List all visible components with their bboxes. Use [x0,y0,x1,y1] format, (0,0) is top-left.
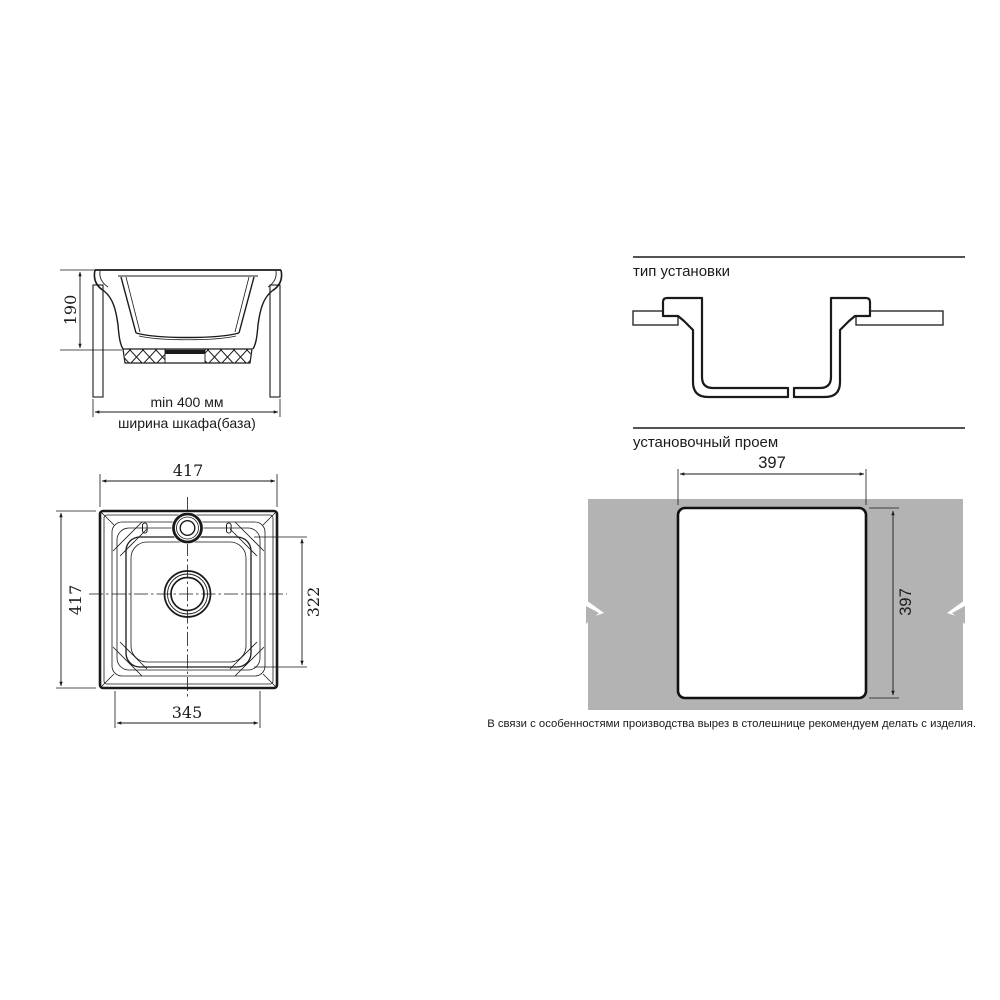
dim-cutout-width: 397 [678,454,866,505]
cross-section-view: 190 min 400 мм ширина шкафа(база) [60,270,282,431]
cutout-opening [678,508,866,698]
installation-type-title: тип установки [633,263,730,280]
dim-cutout-height-value: 397 [897,588,915,616]
dim-bowl-width: 345 [115,691,260,728]
bowl-floor-edge [131,542,246,662]
sink-profile-right [794,298,870,397]
dim-outer-width-value: 417 [173,461,204,480]
dim-outer-height-value: 417 [66,585,85,616]
dim-cutout-width-value: 397 [758,454,786,472]
drain-recess [165,350,205,354]
sink-section [94,270,281,363]
cabinet-wall-left [93,285,103,397]
installation-opening-title: установочный проем [633,434,778,451]
cabinet-wall-right [270,285,280,397]
dim-bowl-height: 322 [254,537,323,667]
dim-bowl-height-value: 322 [304,587,323,618]
base-hatch-right [205,350,251,363]
sink-profile-left [663,298,788,397]
faucet-hole [172,512,204,544]
drawing-canvas: 190 min 400 мм ширина шкафа(база) тип ус… [0,0,1000,1000]
installation-opening-view: установочный проем 397 397 В связи с осо… [487,428,976,730]
dim-depth-value: 190 [61,295,80,326]
rim-line-3 [117,528,260,670]
sink-technical-drawing: 190 min 400 мм ширина шкафа(база) тип ус… [0,0,1000,1000]
dim-outer-width: 417 [100,461,277,507]
dim-cabinet-width: min 400 мм ширина шкафа(база) [93,394,280,431]
rim-line-2 [112,522,265,676]
installation-type-view: тип установки [633,257,965,397]
dim-min-width-value: min 400 мм [151,394,224,410]
production-note: В связи с особенностями производства выр… [487,718,976,730]
dim-outer-height: 417 [56,511,96,688]
dim-depth: 190 [60,270,122,350]
bowl-top-edge [126,537,251,667]
top-view: 417 417 322 345 [56,461,323,728]
base-hatch-left [125,350,165,363]
dim-bowl-width-value: 345 [172,703,203,722]
cabinet-width-label: ширина шкафа(база) [118,415,256,431]
